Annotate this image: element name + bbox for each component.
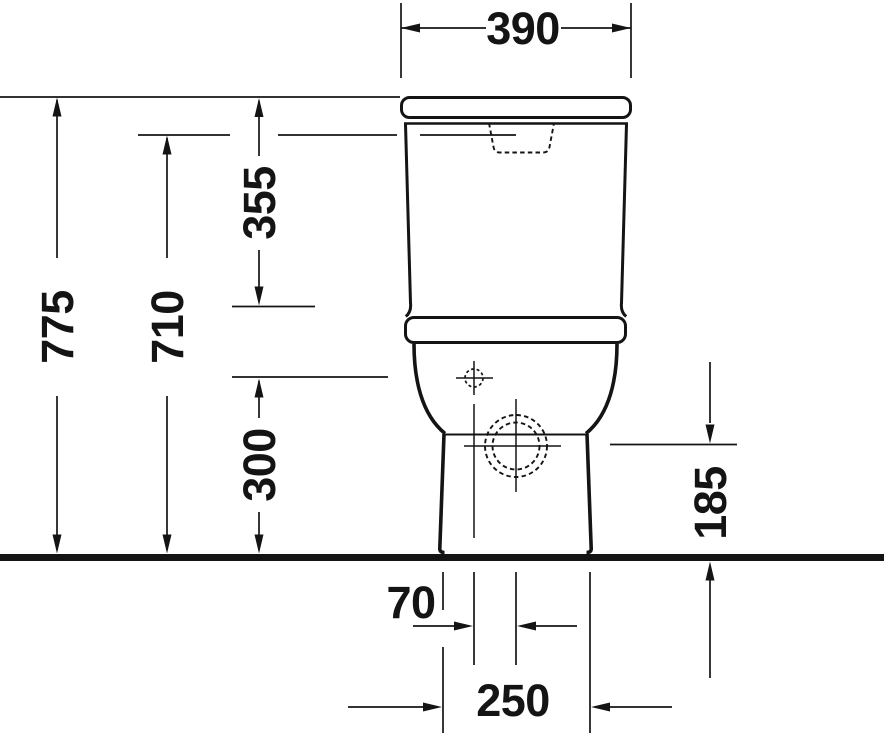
arrowhead-up-icon bbox=[255, 379, 264, 398]
arrowhead-left-icon bbox=[401, 24, 420, 33]
arrowhead-down-icon bbox=[163, 535, 172, 554]
cistern-body-right-side bbox=[621, 124, 626, 317]
pedestal-right-side bbox=[587, 434, 592, 553]
arrowhead-right-icon bbox=[423, 703, 442, 712]
arrowhead-right-icon bbox=[612, 24, 631, 33]
dim-height-to-tank-top-label: 710 bbox=[142, 290, 193, 364]
hidden-details bbox=[456, 361, 561, 538]
dim-outlet-height-label: 185 bbox=[685, 466, 736, 540]
dim-tank-height-label: 355 bbox=[234, 166, 285, 240]
arrowhead-down-icon bbox=[255, 535, 264, 554]
arrowhead-up-icon bbox=[163, 136, 172, 155]
pedestal-left-side bbox=[440, 434, 445, 553]
flush-button-dashed bbox=[489, 123, 554, 153]
arrowhead-up-icon bbox=[706, 562, 715, 581]
dim-base-width-label: 250 bbox=[476, 675, 550, 726]
dim-center-offset bbox=[413, 622, 577, 631]
technical-drawing-canvas: 390 775 710 355 300 bbox=[0, 0, 884, 734]
arrowhead-down-icon bbox=[706, 425, 715, 444]
dim-top-width-label: 390 bbox=[486, 3, 560, 54]
dim-inlet-height-label: 300 bbox=[234, 428, 285, 502]
seat-rim-band bbox=[406, 318, 626, 343]
bowl-left-curve bbox=[414, 344, 445, 434]
ground-line bbox=[0, 554, 884, 561]
cistern-body-left-side bbox=[406, 124, 411, 317]
dim-center-offset-label: 70 bbox=[386, 577, 435, 628]
arrowhead-left-icon bbox=[517, 622, 536, 631]
dim-overall-height-label: 775 bbox=[32, 290, 83, 364]
arrowhead-right-icon bbox=[454, 622, 473, 631]
cistern-lid bbox=[402, 98, 631, 118]
arrowhead-up-icon bbox=[53, 98, 62, 117]
arrowhead-up-icon bbox=[255, 98, 264, 117]
arrowhead-down-icon bbox=[255, 287, 264, 306]
bowl-right-curve bbox=[586, 344, 617, 434]
arrowhead-down-icon bbox=[53, 535, 62, 554]
arrowhead-left-icon bbox=[591, 703, 610, 712]
